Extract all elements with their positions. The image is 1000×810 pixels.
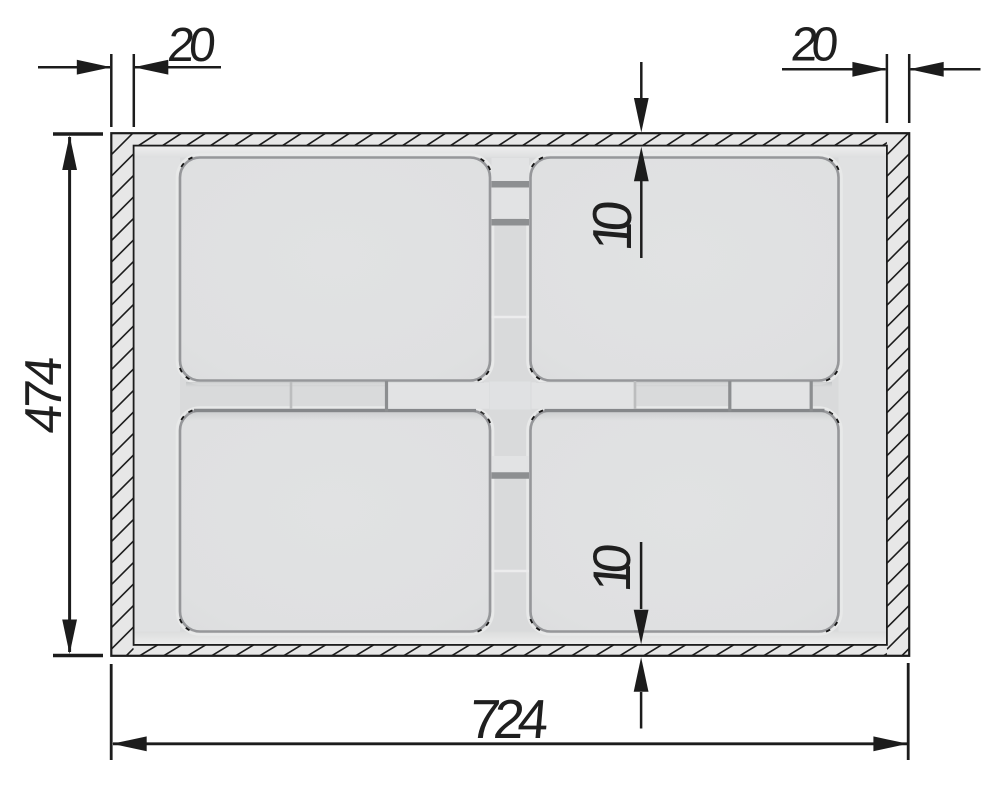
svg-text:20: 20 <box>789 19 841 72</box>
svg-text:10: 10 <box>583 541 642 594</box>
svg-text:474: 474 <box>15 354 73 436</box>
svg-text:20: 20 <box>166 19 219 72</box>
svg-text:10: 10 <box>581 198 643 253</box>
svg-text:724: 724 <box>467 688 551 750</box>
